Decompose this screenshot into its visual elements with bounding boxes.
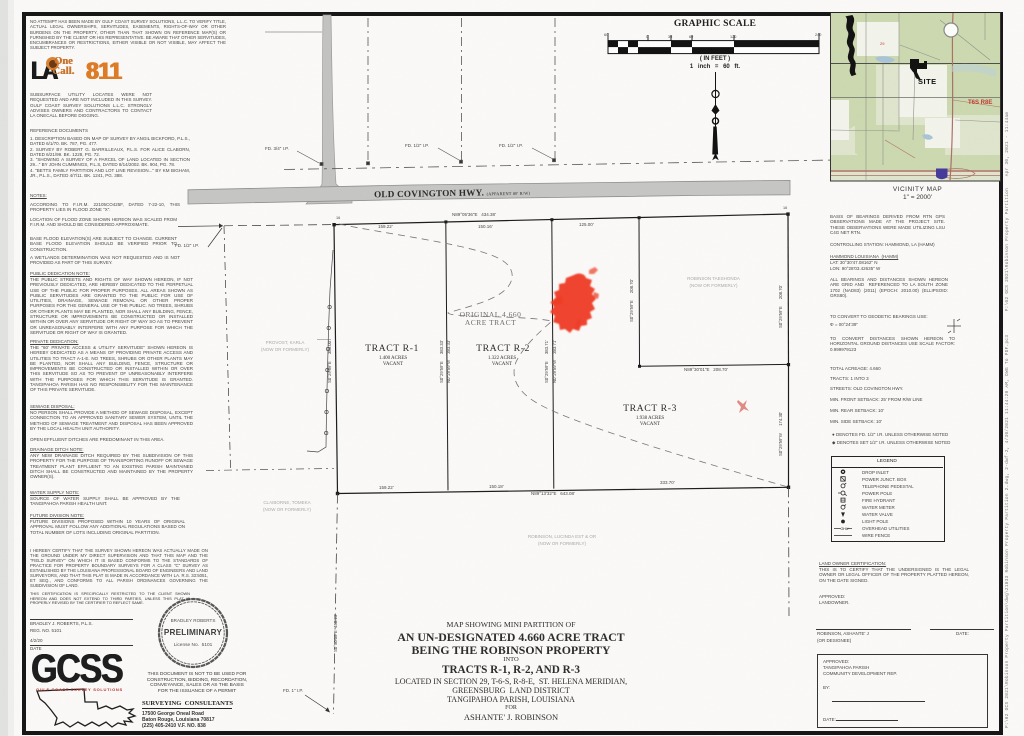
svg-text:OHU: OHU xyxy=(841,527,849,531)
